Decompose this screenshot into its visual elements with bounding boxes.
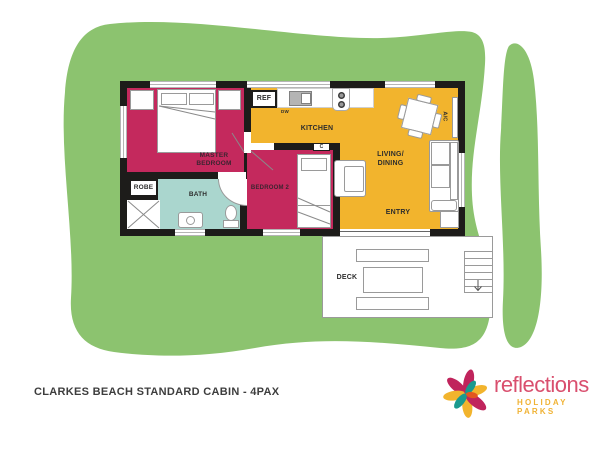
bath-door-opening [218,172,246,179]
cooktop [332,88,350,111]
sofa-cushion [431,165,450,188]
sofa [429,140,459,212]
toilet-tank [223,220,239,228]
bed-foot-line [298,205,330,206]
sofa-armrest [431,200,457,211]
kitchen-sink [289,91,312,106]
bedroom2-bed [297,154,331,228]
master-bed [157,89,216,153]
logo-brand-text: reflections [494,372,589,398]
deck-label: DECK [329,274,365,283]
robe-label: ROBE [131,184,156,192]
toilet-bowl [225,205,237,221]
cupboard-box: C [313,143,330,151]
window-bath-bottom [175,229,205,236]
sofa-cushion [431,142,450,165]
lawn-ribbon [500,43,542,348]
deck-bench-top [356,249,429,262]
living-dining-label: LIVING/ DINING [368,151,413,169]
entry-sliding-door [340,229,430,236]
entry-label: ENTRY [378,209,418,218]
linen-closet [127,200,160,229]
air-conditioner-label: A/C [441,101,448,131]
deck-bench-bottom [356,297,429,310]
dining-table [401,98,439,136]
bedroom2-door-opening [251,143,274,150]
bath-vanity [178,212,203,228]
robe-closet: ROBE [129,179,158,197]
logo-tagline-text: HOLIDAY PARKS [517,398,596,416]
bedroom2-label: BEDROOM 2 [245,185,295,193]
fridge-box: REF [251,90,277,108]
window-master-left [120,106,127,158]
dishwasher-label: DW [276,109,294,115]
nightstand-right [218,90,241,110]
bath-label: BATH [178,191,218,199]
deck-stairs [464,251,493,293]
deck-table [363,267,423,293]
burner [338,92,345,99]
sink-drainer [301,93,311,104]
kitchen-label: KITCHEN [287,125,347,134]
pillow [301,158,327,171]
pillow [189,93,214,105]
sofa-back [450,142,458,200]
window-master-top [150,81,216,88]
pillow [161,93,187,105]
reflections-flower-icon [436,362,500,426]
armchair-seat [344,166,364,192]
entry-mat [440,211,459,228]
armchair [334,160,366,197]
air-conditioner-unit [452,97,458,138]
window-bedroom2-bottom [263,229,300,236]
floorplan-page: DECK MASTER BEDROOM [0,0,600,450]
nightstand-left [130,90,154,110]
window-kitchen-top [247,81,330,88]
fridge-label: REF [253,95,275,104]
reflections-logo: reflections HOLIDAY PARKS [436,360,596,426]
cupboard-label: C [314,144,329,150]
window-living-right [458,153,465,207]
window-dining-top [385,81,435,88]
basin [186,216,195,225]
burner [338,101,345,108]
page-title: CLARKES BEACH STANDARD CABIN - 4PAX [34,386,279,398]
cabin-plan: MASTER BEDROOM ROBE BATH BEDROOM 2 C REF [120,81,465,236]
master-bedroom-label: MASTER BEDROOM [188,152,240,168]
master-door-opening [244,132,251,153]
